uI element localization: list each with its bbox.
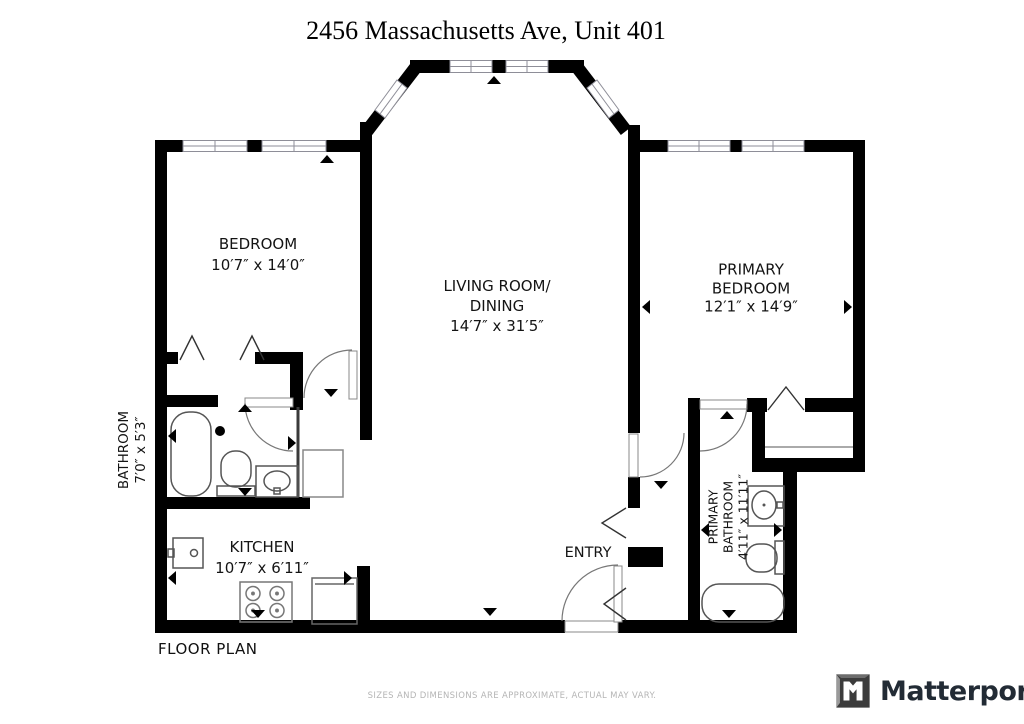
bathroom-sink [256,466,298,497]
kitchen-dims: 10′7″ x 6′11″ [215,558,309,579]
kitchen-sink [168,538,203,568]
doors [245,350,747,632]
primary-bedroom-name2: BEDROOM [704,279,798,298]
bathroom-dims: 7′0″ x 5′3″ [133,411,150,489]
primary-bathroom-dims: 4′11″ x 11′11″ [736,474,751,560]
floor-plan-page: 2456 Massachusetts Ave, Unit 401 [0,0,1024,724]
disclaimer-text: SIZES AND DIMENSIONS ARE APPROXIMATE, AC… [368,691,657,701]
entry-name: ENTRY [565,543,612,563]
bedroom-label: BEDROOM 10′7″ x 14′0″ [211,234,305,276]
bedroom-name: BEDROOM [211,234,305,255]
bathroom-label: BATHROOM 7′0″ x 5′3″ [116,411,150,489]
refrigerator [312,578,357,624]
primary-bathtub [702,584,784,622]
living-room-label: LIVING ROOM/ DINING 14′7″ x 31′5″ [443,276,550,336]
primary-bedroom-dims: 12′1″ x 14′9″ [704,297,798,316]
bay-diagonal-walls [367,67,626,131]
matterport-logo-icon [834,672,872,710]
primary-sink [748,486,784,526]
living-room-dims: 14′7″ x 31′5″ [443,316,550,336]
primary-bedroom-name: PRIMARY [704,260,798,279]
entry-label: ENTRY [565,543,612,563]
primary-bedroom-label: PRIMARY BEDROOM 12′1″ x 14′9″ [704,260,798,316]
matterport-wordmark: Matterport [880,676,1024,707]
stove [240,582,292,622]
primary-toilet-bowl [746,544,777,572]
bathroom-name: BATHROOM [116,411,133,489]
living-room-name: LIVING ROOM/ [443,276,550,296]
matterport-branding: Matterport [834,672,1024,710]
dot-marker [215,426,225,436]
primary-bathroom-label: PRIMARY BATHROOM 4′11″ x 11′11″ [706,474,751,560]
floor-plan-drawing [0,0,1024,724]
hall-cabinet [303,450,343,497]
kitchen-label: KITCHEN 10′7″ x 6′11″ [215,537,309,579]
bathtub [171,412,211,496]
toilet-bowl [221,451,251,487]
primary-bathroom-name2: BATHROOM [721,474,736,560]
kitchen-name: KITCHEN [215,537,309,558]
living-room-name2: DINING [443,296,550,316]
bedroom-dims: 10′7″ x 14′0″ [211,255,305,276]
windows [183,61,804,152]
primary-bathroom-name: PRIMARY [706,474,721,560]
floor-plan-caption: FLOOR PLAN [158,640,257,658]
door-arcs [245,350,747,621]
door-leaves [245,351,747,632]
